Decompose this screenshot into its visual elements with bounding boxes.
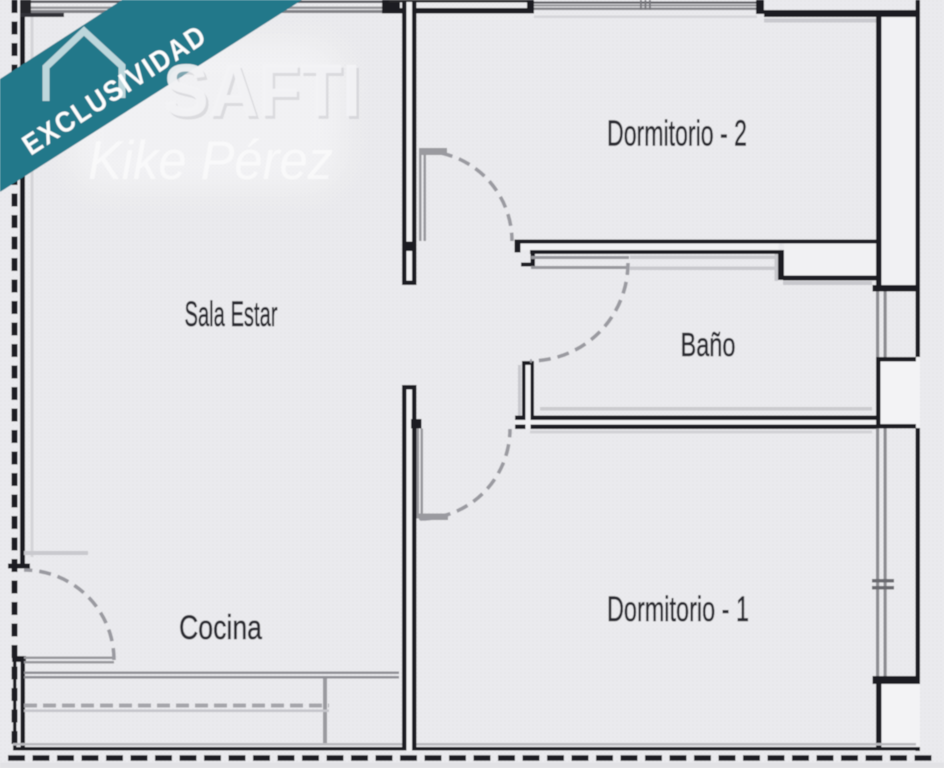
svg-text:Baño: Baño [681,326,736,363]
svg-text:Kike Pérez: Kike Pérez [88,129,333,191]
svg-text:Dormitorio - 2: Dormitorio - 2 [607,113,747,154]
svg-text:SAFTI: SAFTI [163,49,361,132]
svg-text:Dormitorio - 1: Dormitorio - 1 [607,590,749,629]
svg-text:Cocina: Cocina [179,609,262,647]
svg-text:Sala Estar: Sala Estar [185,295,278,334]
